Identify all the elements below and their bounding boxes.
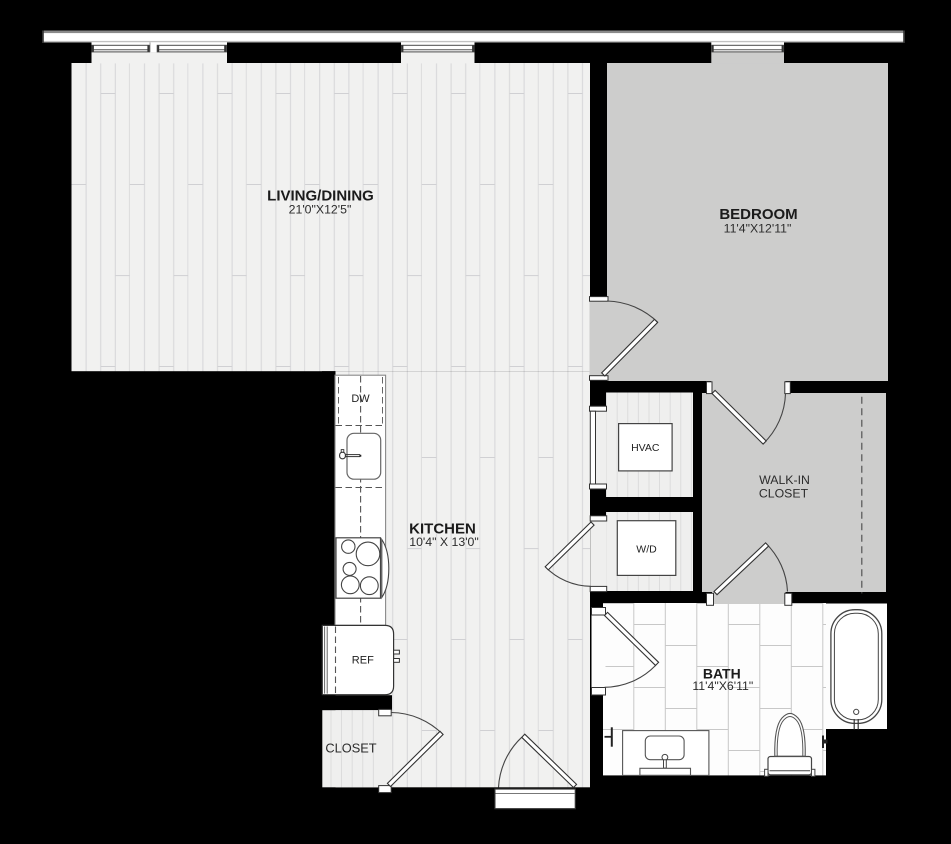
svg-text:10'4" X 13'0": 10'4" X 13'0"	[409, 535, 479, 549]
svg-text:21'0"X12'5": 21'0"X12'5"	[289, 203, 352, 217]
svg-text:CLOSET: CLOSET	[759, 486, 809, 500]
svg-text:11'4"X6'11": 11'4"X6'11"	[692, 679, 753, 693]
svg-text:11'4"X12'11": 11'4"X12'11"	[724, 222, 792, 236]
svg-text:HVAC: HVAC	[631, 442, 660, 454]
svg-text:DW: DW	[351, 393, 370, 405]
svg-text:WALK-IN: WALK-IN	[759, 473, 810, 487]
svg-text:W/D: W/D	[636, 544, 657, 556]
svg-text:REF: REF	[352, 654, 374, 666]
svg-text:CLOSET: CLOSET	[325, 741, 376, 756]
